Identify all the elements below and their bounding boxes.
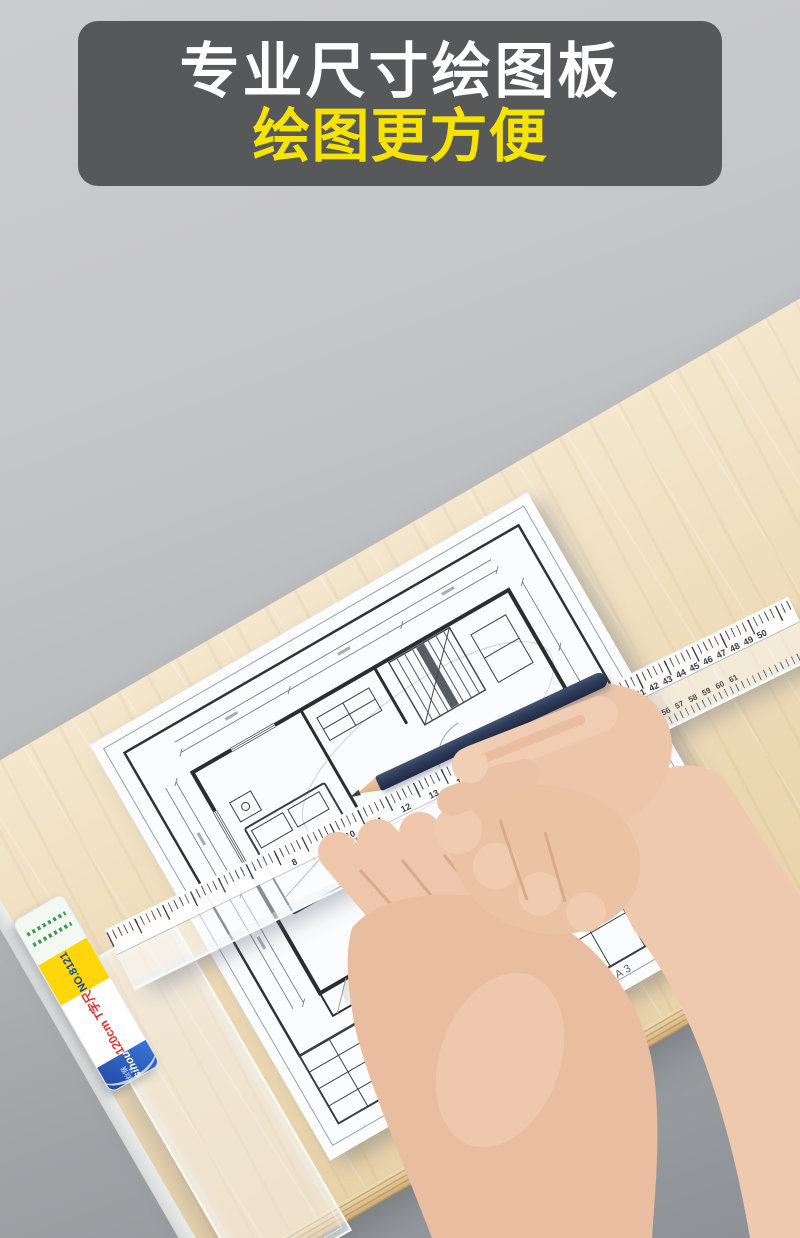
- ruler-number: 45: [688, 660, 701, 673]
- ruler-number: 14: [455, 774, 468, 787]
- product-photo: 卧室 卫生间 A3 NO.8121 120cm T字尺 Jinsihou 金丝猴: [0, 0, 800, 1238]
- ruler-number: 50: [755, 627, 768, 640]
- ruler-number: 44: [674, 667, 687, 680]
- model-text: NO.8121: [58, 950, 90, 994]
- ruler-number: 12: [399, 801, 412, 814]
- room-label-bathroom: 卫生间: [474, 873, 503, 896]
- ruler-number: 17: [538, 733, 551, 746]
- ruler-number: 13: [427, 787, 440, 800]
- ruler-number: 8: [290, 857, 299, 868]
- ruler-number: 47: [715, 647, 728, 660]
- ruler-number: 16: [511, 747, 524, 760]
- ruler-number: 9: [318, 843, 327, 854]
- banner-subtitle: 绘图更方便: [252, 107, 547, 168]
- ruler-number: 11: [372, 815, 385, 828]
- staircase: [389, 628, 486, 725]
- ruler-number: 40: [620, 693, 633, 706]
- ruler-number: 43: [661, 673, 674, 686]
- ruler-number: 10: [343, 828, 356, 841]
- ruler-number: 46: [701, 654, 714, 667]
- balcony: [320, 931, 441, 1016]
- ruler-number: 42: [647, 680, 660, 693]
- ruler-number: 41: [634, 687, 647, 700]
- ruler-number: 49: [742, 634, 755, 647]
- title-banner: 专业尺寸绘图板 绘图更方便: [78, 21, 722, 186]
- ruler-number: 48: [728, 641, 741, 654]
- ruler-number: 15: [483, 760, 496, 773]
- banner-title: 专业尺寸绘图板: [180, 40, 621, 103]
